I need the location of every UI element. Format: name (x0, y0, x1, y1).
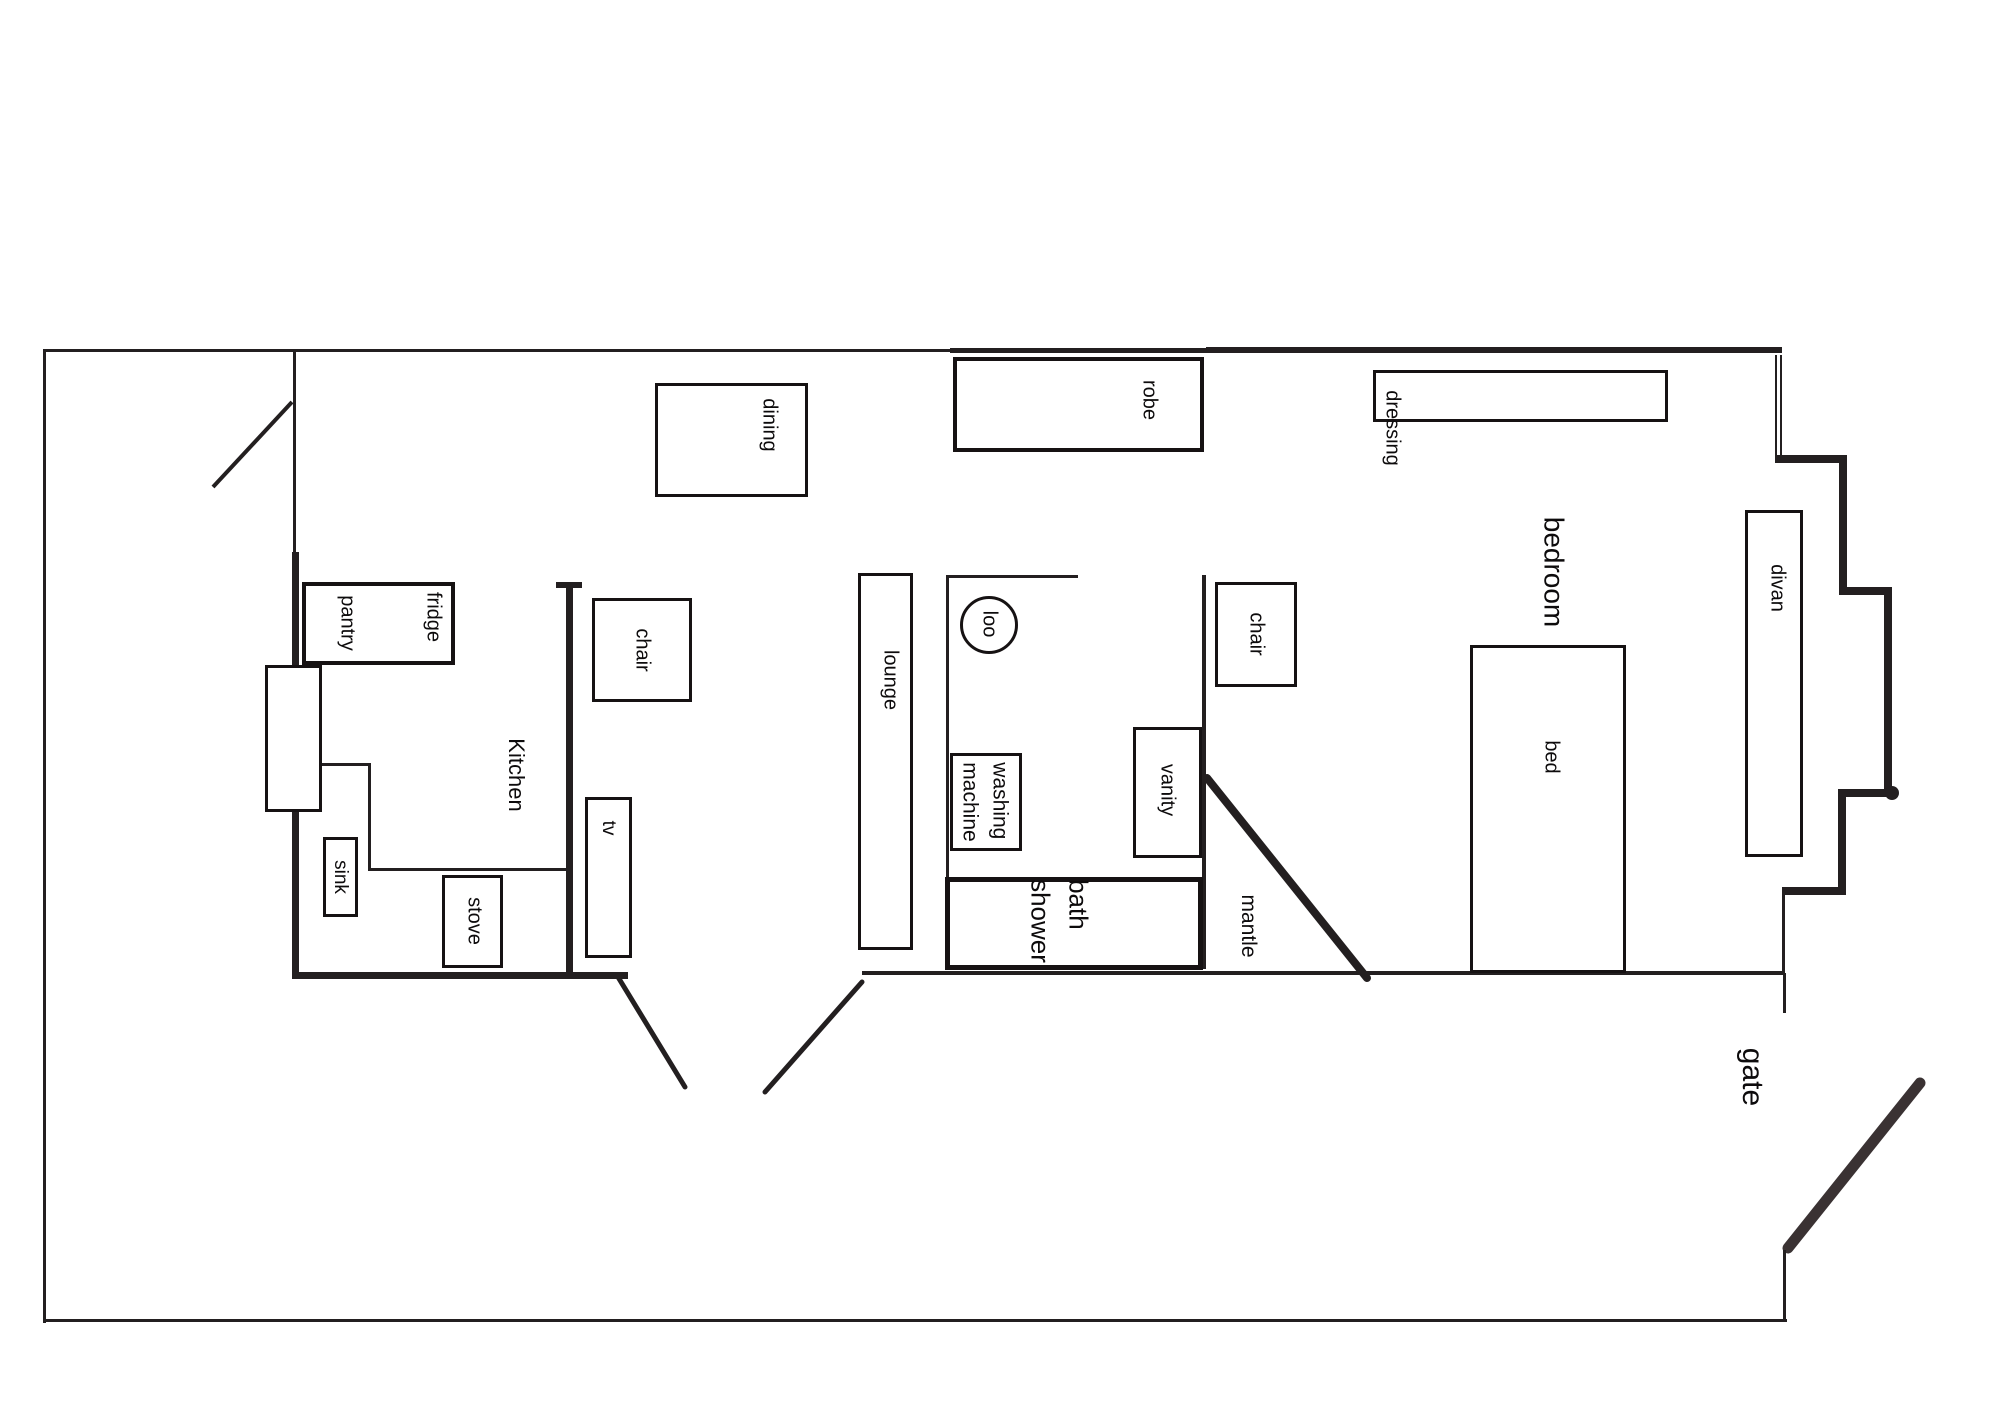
bathroom-wall-top (948, 575, 1078, 578)
furniture-bed (1470, 645, 1626, 973)
door-swing-yard-entry (213, 402, 292, 487)
furniture-label-bed: bed (1537, 740, 1566, 773)
door-swing-patio-left (618, 977, 685, 1087)
door-swing-patio-right (765, 982, 862, 1092)
room-label-bedroom: bedroom (1533, 517, 1574, 628)
bay-step-v1 (1839, 455, 1847, 595)
wall-joint-blob (1885, 786, 1899, 800)
house-wall-top-east (1206, 347, 1782, 353)
furniture-label-divan: divan (1763, 564, 1792, 612)
furniture-lounge (858, 573, 913, 950)
fixture-label-bath-shower: bath shower (1021, 879, 1096, 963)
yard-wall-right-upper (1783, 973, 1786, 1013)
furniture-label-fridge: fridge (419, 592, 448, 642)
room-label-kitchen: Kitchen (500, 738, 532, 811)
furniture-label-dressing: dressing (1378, 390, 1407, 466)
kitchen-divider-wall (566, 584, 573, 979)
kitchen-counter-bottom (368, 868, 568, 871)
furniture-label-washing-machine: washing machine (954, 762, 1015, 841)
furniture-label-tv: tv (594, 821, 622, 836)
floor-plan: Kitchenbedroomgatemantlediningpantryfrid… (0, 0, 2000, 1414)
room-label-gate: gate (1730, 1048, 1774, 1106)
yard-wall-right-lower (1783, 1250, 1786, 1322)
bay-step-v3 (1838, 789, 1846, 895)
furniture-label-sink: sink (326, 860, 354, 894)
gate-door-swing (1788, 1083, 1920, 1248)
kitchen-counter-side (368, 763, 371, 871)
furniture-dressing-table (1373, 370, 1668, 422)
bay-step-h1 (1775, 455, 1847, 463)
bay-step-h4 (1782, 887, 1846, 895)
furniture-label-lounge: lounge (876, 650, 905, 710)
house-wall-top-mid (950, 348, 1210, 353)
yard-wall-bottom (43, 1319, 1787, 1322)
furniture-cupboard (265, 665, 322, 812)
furniture-label-chair-bedroom: chair (1242, 612, 1271, 655)
furniture-label-stove: stove (460, 897, 489, 945)
bay-step-v2 (1884, 587, 1892, 795)
furniture-label-pantry: pantry (333, 595, 362, 651)
mantle-diagonal (1207, 778, 1367, 978)
furniture-label-vanity: vanity (1153, 764, 1182, 816)
furniture-label-robe: robe (1135, 380, 1164, 420)
room-label-mantle: mantle (1233, 894, 1263, 957)
fixture-label-loo: loo (975, 611, 1004, 638)
furniture-dining-table (655, 383, 808, 497)
furniture-robe (953, 357, 1204, 452)
house-wall-south-east (862, 971, 1784, 975)
window-right-inner (1780, 355, 1782, 458)
furniture-divan (1745, 510, 1803, 857)
furniture-label-chair-kitchen: chair (628, 628, 657, 671)
kitchen-counter-top (322, 763, 370, 766)
bathroom-wall-left (946, 575, 949, 877)
house-wall-west-thin (293, 352, 296, 552)
furniture-label-dining: dining (755, 398, 784, 451)
window-right-outer (1775, 355, 1777, 458)
yard-wall-left (43, 349, 46, 1323)
yard-wall-top-west (43, 349, 953, 352)
kitchen-divider-cap (556, 582, 582, 588)
house-wall-south-west (292, 972, 628, 979)
bay-step-v4 (1782, 887, 1785, 975)
